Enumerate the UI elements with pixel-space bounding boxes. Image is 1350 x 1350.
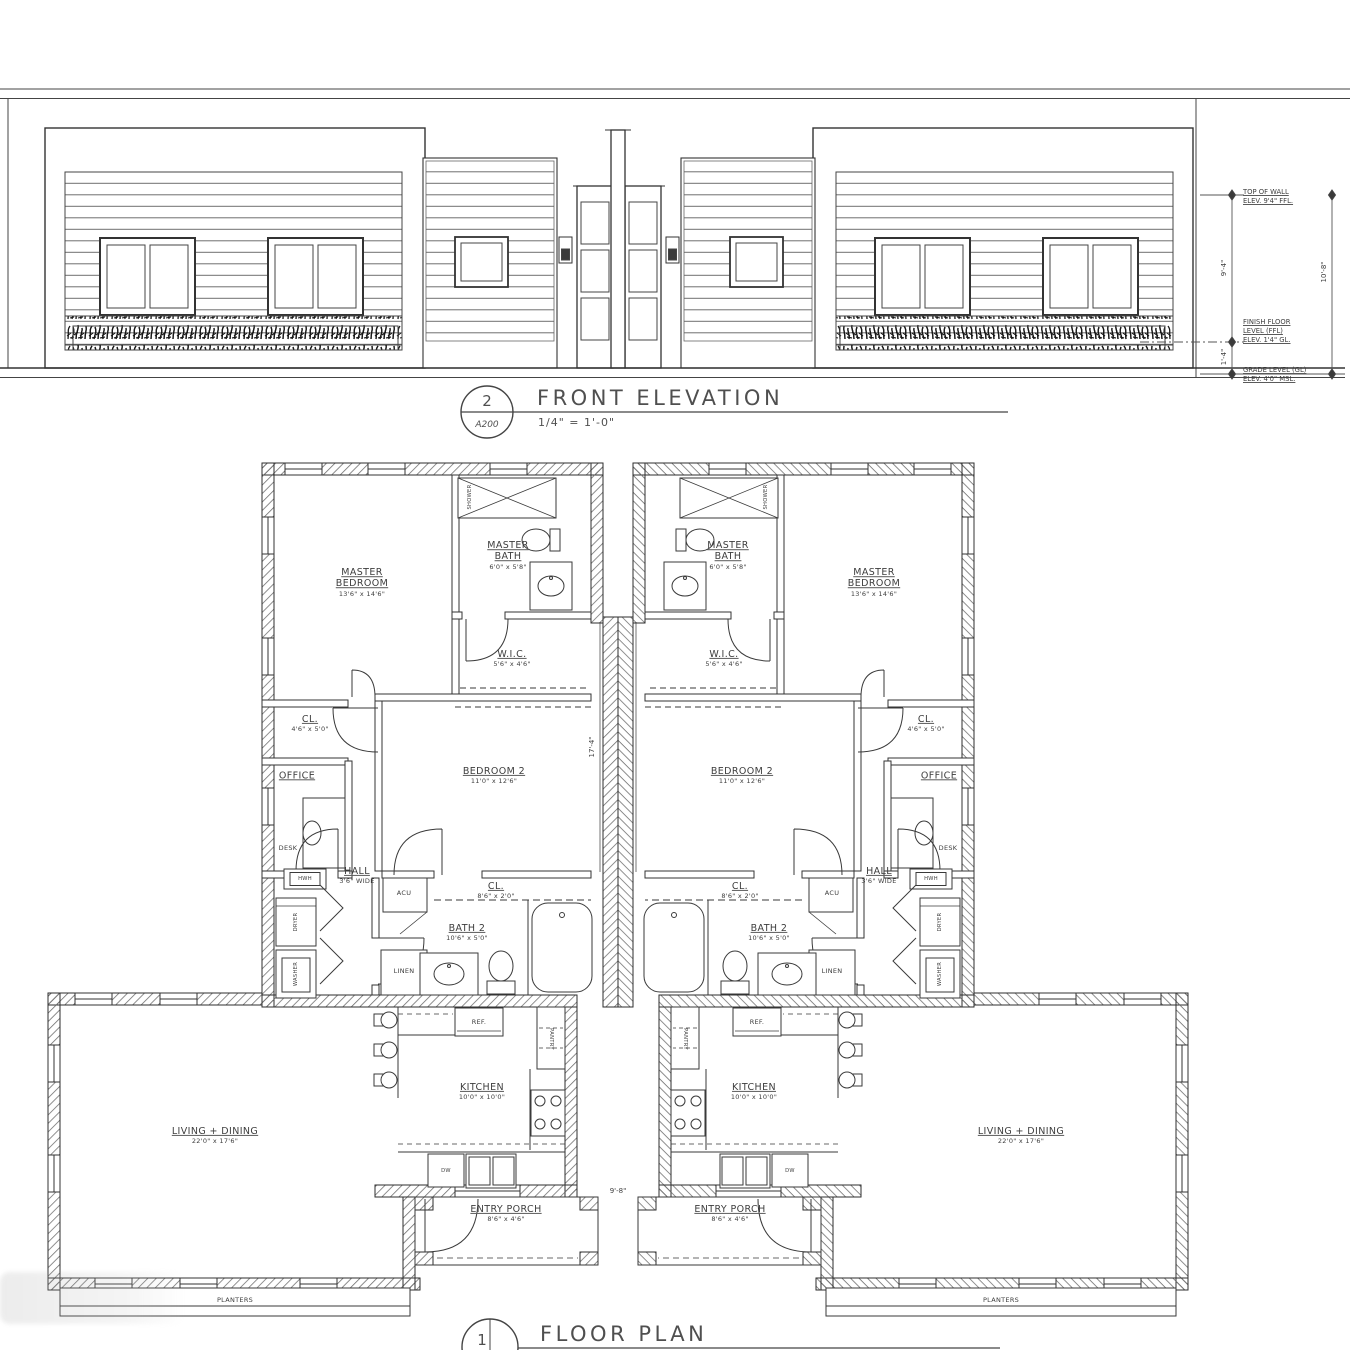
dim-plinth: 1'-4" <box>1220 349 1228 366</box>
watermark <box>0 1272 185 1324</box>
plan-title: FLOOR PLAN <box>540 1322 707 1346</box>
elevation-sheet: A200 <box>475 420 498 430</box>
dim-porch-gap: 9'-8" <box>610 1187 627 1195</box>
elevation-title: FRONT ELEVATION <box>537 386 783 410</box>
elevation-scale: 1/4" = 1'-0" <box>538 416 615 429</box>
dim-wall-height: 9'-4" <box>1220 260 1228 277</box>
floor-plan-linework <box>48 463 1188 1350</box>
annotation-top-of-wall: TOP OF WALL ELEV. 9'4" FFL. <box>1243 188 1293 206</box>
annotation-finish-floor: FINISH FLOOR LEVEL (FFL) ELEV. 1'4" GL. <box>1243 318 1291 344</box>
dim-center-depth: 17'-4" <box>588 736 596 757</box>
annotation-grade-level: GRADE LEVEL (GL) ELEV. 4'0" MSL. <box>1243 366 1306 384</box>
drawing-canvas <box>0 0 1350 1350</box>
elevation-number: 2 <box>482 392 492 410</box>
plan-number: 1 <box>477 1331 487 1349</box>
architectural-sheet: TOP OF WALL ELEV. 9'4" FFL. FINISH FLOOR… <box>0 0 1350 1350</box>
dim-total-height: 10'-8" <box>1320 261 1328 282</box>
